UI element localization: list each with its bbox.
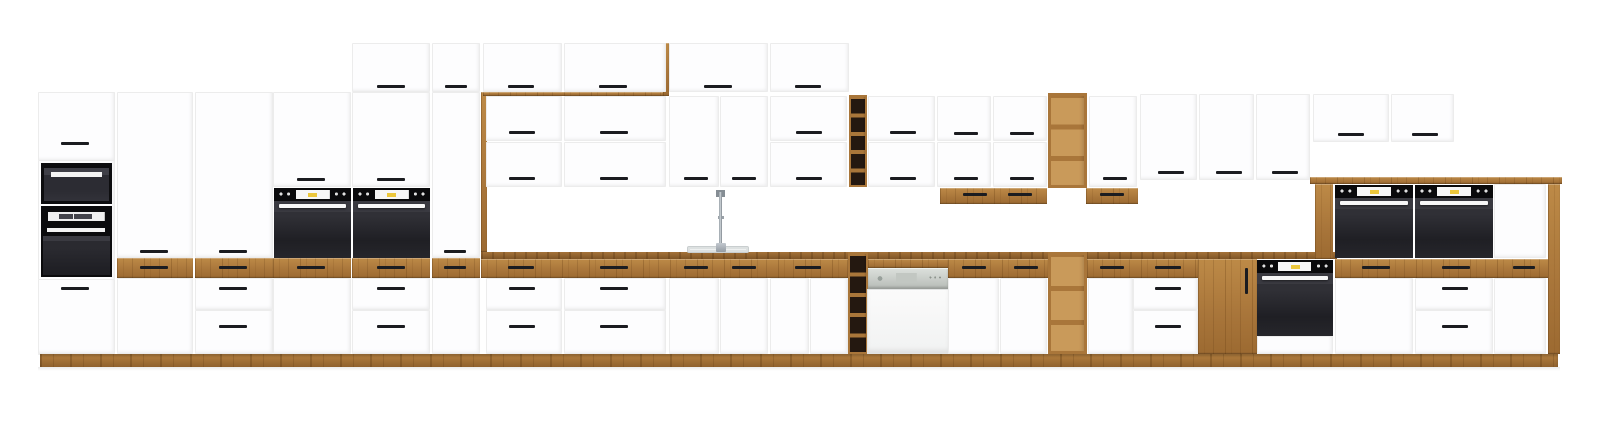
raised-block-countertop: [1310, 177, 1562, 184]
handle: [444, 250, 466, 253]
base-cabinet-door: [770, 278, 809, 354]
built-in-oven-4: [1415, 185, 1493, 258]
handle: [509, 287, 535, 290]
handle: [890, 131, 916, 134]
handle: [1216, 171, 1242, 174]
handle: [1412, 133, 1438, 136]
upper-cabinet-door: [486, 96, 562, 141]
handle: [1158, 171, 1184, 174]
handle: [954, 132, 978, 135]
handle: [377, 85, 405, 88]
built-in-microwave: [41, 163, 112, 204]
handle: [1362, 266, 1390, 269]
handle: [954, 177, 978, 180]
handle: [1155, 325, 1181, 328]
oak-drawer-band: [868, 259, 948, 268]
handle: [1008, 193, 1032, 196]
upper-cabinet-door: [564, 96, 666, 141]
handle: [140, 266, 168, 269]
handle: [684, 266, 708, 269]
drawer-front: [1133, 310, 1198, 354]
base-cabinet-door: [948, 278, 999, 354]
handle: [796, 177, 822, 180]
upper-cabinet-door: [564, 142, 666, 187]
handle: [1103, 177, 1127, 180]
handle: [377, 325, 405, 328]
oak-plinth: [40, 354, 1558, 367]
handle: [1338, 133, 1364, 136]
handle: [61, 142, 89, 145]
base-cabinet-door: [810, 278, 848, 354]
handle: [445, 85, 467, 88]
tall-column-b-door: [117, 92, 193, 258]
open-shelf-base: [1048, 252, 1087, 354]
handle: [1010, 132, 1034, 135]
oven-housing-d-base-door: [273, 278, 351, 354]
raised-block-side-panel: [1315, 184, 1333, 259]
drawer-front: [352, 310, 430, 354]
raised-block-base-door: [1335, 278, 1413, 354]
drawer-front: [1415, 278, 1493, 310]
wine-rack-base: [848, 252, 868, 354]
handle: [600, 287, 628, 290]
handle: [1442, 325, 1468, 328]
handle: [684, 177, 708, 180]
handle: [219, 287, 247, 290]
built-in-oven-tall-column: [41, 206, 112, 277]
handle: [600, 325, 628, 328]
tall-column-b-base-panel: [117, 278, 193, 354]
handle: [1155, 266, 1181, 269]
handle: [1272, 171, 1298, 174]
kitchen-cabinet-set-render: [0, 0, 1600, 434]
oak-under-cabinet-drawer: [1086, 188, 1138, 204]
countertop-edge: [481, 252, 1337, 259]
handle: [140, 250, 168, 253]
handle: [1513, 266, 1535, 269]
handle: [1100, 193, 1124, 196]
drawer-front: [195, 278, 273, 310]
handle: [219, 250, 247, 253]
built-in-oven-3: [1335, 185, 1413, 258]
vertical-handle: [1245, 268, 1248, 294]
drawer-front: [1133, 278, 1198, 310]
handle: [890, 177, 916, 180]
handle: [444, 266, 466, 269]
handle: [297, 178, 325, 181]
tall-column-a-door-top: [38, 92, 115, 161]
drawer-front: [486, 278, 562, 310]
kitchen-faucet: [712, 190, 730, 252]
upper-cabinet-door: [669, 96, 719, 187]
handle: [1442, 266, 1470, 269]
upper-cabinet-door: [993, 142, 1047, 187]
open-shelf-upper: [1048, 93, 1087, 188]
handle: [1014, 266, 1038, 269]
tall-column-c-door: [195, 92, 273, 258]
sink-base-door: [669, 278, 719, 354]
upper-cabinet-door: [486, 142, 562, 187]
raised-block-door: [1494, 184, 1546, 258]
handle: [377, 287, 405, 290]
handle: [377, 266, 405, 269]
drawer-front: [564, 310, 666, 354]
handle: [509, 131, 535, 134]
upper-cabinet-door: [1199, 94, 1254, 180]
handle: [1010, 177, 1034, 180]
upper-cabinet-door: [1256, 94, 1310, 180]
drawer-front: [486, 310, 562, 354]
handle: [219, 325, 247, 328]
handle: [600, 177, 628, 180]
handle: [509, 177, 535, 180]
drawer-front: [195, 310, 273, 354]
handle: [796, 131, 822, 134]
oven-housing-e-door: [352, 92, 430, 187]
upper-cabinet-door: [1140, 94, 1197, 180]
built-in-oven-1: [274, 188, 351, 258]
oak-front-cabinet: [1198, 259, 1257, 354]
floor-shadow: [38, 367, 1560, 371]
handle: [1442, 287, 1468, 290]
handle: [732, 266, 756, 269]
handle: [795, 266, 821, 269]
dishwasher-door: [867, 289, 949, 354]
handle: [219, 266, 247, 269]
handle: [509, 325, 535, 328]
upper-cabinet-door: [1089, 96, 1137, 187]
base-cabinet-door: [1000, 278, 1047, 354]
handle: [732, 177, 756, 180]
built-in-oven-2: [353, 188, 430, 258]
handle: [508, 85, 534, 88]
handle: [1155, 287, 1181, 290]
upper-cabinet-door: [770, 142, 847, 187]
handle: [704, 85, 732, 88]
dishwasher-control-panel: [868, 268, 948, 289]
base-cabinet-door: [1088, 278, 1133, 354]
handle: [600, 131, 628, 134]
handle: [962, 266, 986, 269]
pantry-base-door: [432, 278, 480, 354]
wine-rack-upper: [849, 95, 867, 187]
raised-block-base-door: [1494, 278, 1546, 354]
oak-under-cabinet-drawers: [940, 188, 1047, 204]
handle: [599, 85, 627, 88]
handle: [600, 266, 628, 269]
drawer-front: [352, 278, 430, 310]
upper-cabinet-door: [937, 142, 991, 187]
tall-column-a-door-bottom: [38, 279, 115, 354]
upper-cabinet-door: [720, 96, 768, 187]
handle: [795, 85, 821, 88]
pantry-tall-door: [432, 92, 480, 258]
upper-cabinet-door: [770, 96, 847, 141]
oak-drawer-band: [481, 259, 848, 278]
oven-housing-d-door: [273, 92, 351, 187]
handle: [508, 266, 534, 269]
upper-cabinet-door: [868, 96, 935, 141]
handle: [297, 266, 325, 269]
built-in-oven-base: [1257, 260, 1333, 336]
raised-block-side-panel: [1548, 184, 1560, 354]
handle: [963, 193, 987, 196]
handle: [377, 178, 405, 181]
drawer-front: [564, 278, 666, 310]
oven-base-drawer: [1257, 336, 1333, 354]
sink-base-door: [720, 278, 768, 354]
handle: [1100, 266, 1124, 269]
handle: [61, 287, 89, 290]
upper-cabinet-door: [868, 142, 935, 187]
drawer-front: [1415, 310, 1493, 354]
